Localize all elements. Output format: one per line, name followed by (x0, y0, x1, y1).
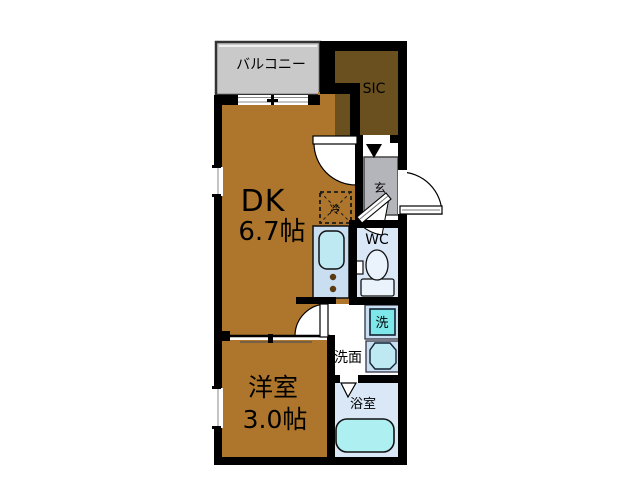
floor-plan-page: バルコニー SIC DK 6.7帖 冷 玄 WC 洗 洗面 浴室 洋室 3.0帖 (0, 0, 640, 480)
western-window-tick-bottom (212, 426, 221, 429)
washer-label: 洗 (375, 316, 388, 331)
wall-bathroom-top (327, 375, 399, 383)
sic-floor-lower (356, 90, 400, 140)
western-room-window (212, 386, 223, 429)
western-window-tick-top (212, 386, 221, 389)
wall-right-outer (398, 41, 407, 465)
wall-bottom-outer (214, 457, 407, 465)
washroom-label: 洗面 (334, 350, 362, 366)
burner-dot-1 (330, 274, 336, 280)
bathtub (336, 419, 394, 452)
dk-window (212, 165, 223, 197)
dk-window-tick-bottom (212, 194, 221, 197)
balcony-highlight (219, 45, 317, 47)
sliding-door-latch (268, 334, 273, 343)
bathroom-label: 浴室 (350, 396, 376, 412)
wc-label: WC (365, 232, 389, 248)
vanity-fixture (366, 341, 399, 372)
kitchen-sink (319, 231, 344, 269)
balcony-label: バルコニー (236, 57, 306, 73)
dk-door-leaf (313, 136, 357, 144)
dk-size-label: 6.7帖 (238, 217, 305, 247)
bathtub-fixture (336, 419, 394, 452)
toilet-bowl (366, 250, 388, 280)
sic-label: SIC (363, 81, 386, 97)
refrigerator-label: 冷 (330, 203, 341, 216)
wall-sic-left-lower (350, 83, 360, 143)
balcony-window-latch-bar (267, 99, 278, 102)
wall-kitchen-wc (349, 220, 357, 304)
wall-genkan-left (355, 140, 363, 222)
sic-opening-gap (363, 135, 390, 143)
genkan-label: 玄 (374, 180, 386, 195)
balcony-window (238, 95, 308, 105)
dk-label: DK (241, 184, 286, 219)
burner-dot-2 (330, 286, 336, 292)
wall-wc-bottom (349, 297, 407, 305)
western-room-size-label: 3.0帖 (243, 405, 308, 434)
washroom-door-leaf (320, 304, 328, 337)
dk-window-tick-top (212, 165, 221, 168)
floor-plan-drawing: バルコニー SIC DK 6.7帖 冷 玄 WC 洗 洗面 浴室 洋室 3.0帖 (0, 0, 640, 480)
toilet-tank (361, 279, 394, 296)
wall-washroom-top (296, 297, 336, 304)
bath-door-gap (340, 375, 358, 383)
dk-door (313, 136, 357, 144)
wall-wc-top (349, 220, 407, 228)
vanity-bowl (370, 343, 396, 369)
kitchen-unit (313, 226, 349, 298)
western-room-label: 洋室 (248, 373, 298, 402)
washroom-door (320, 304, 328, 337)
